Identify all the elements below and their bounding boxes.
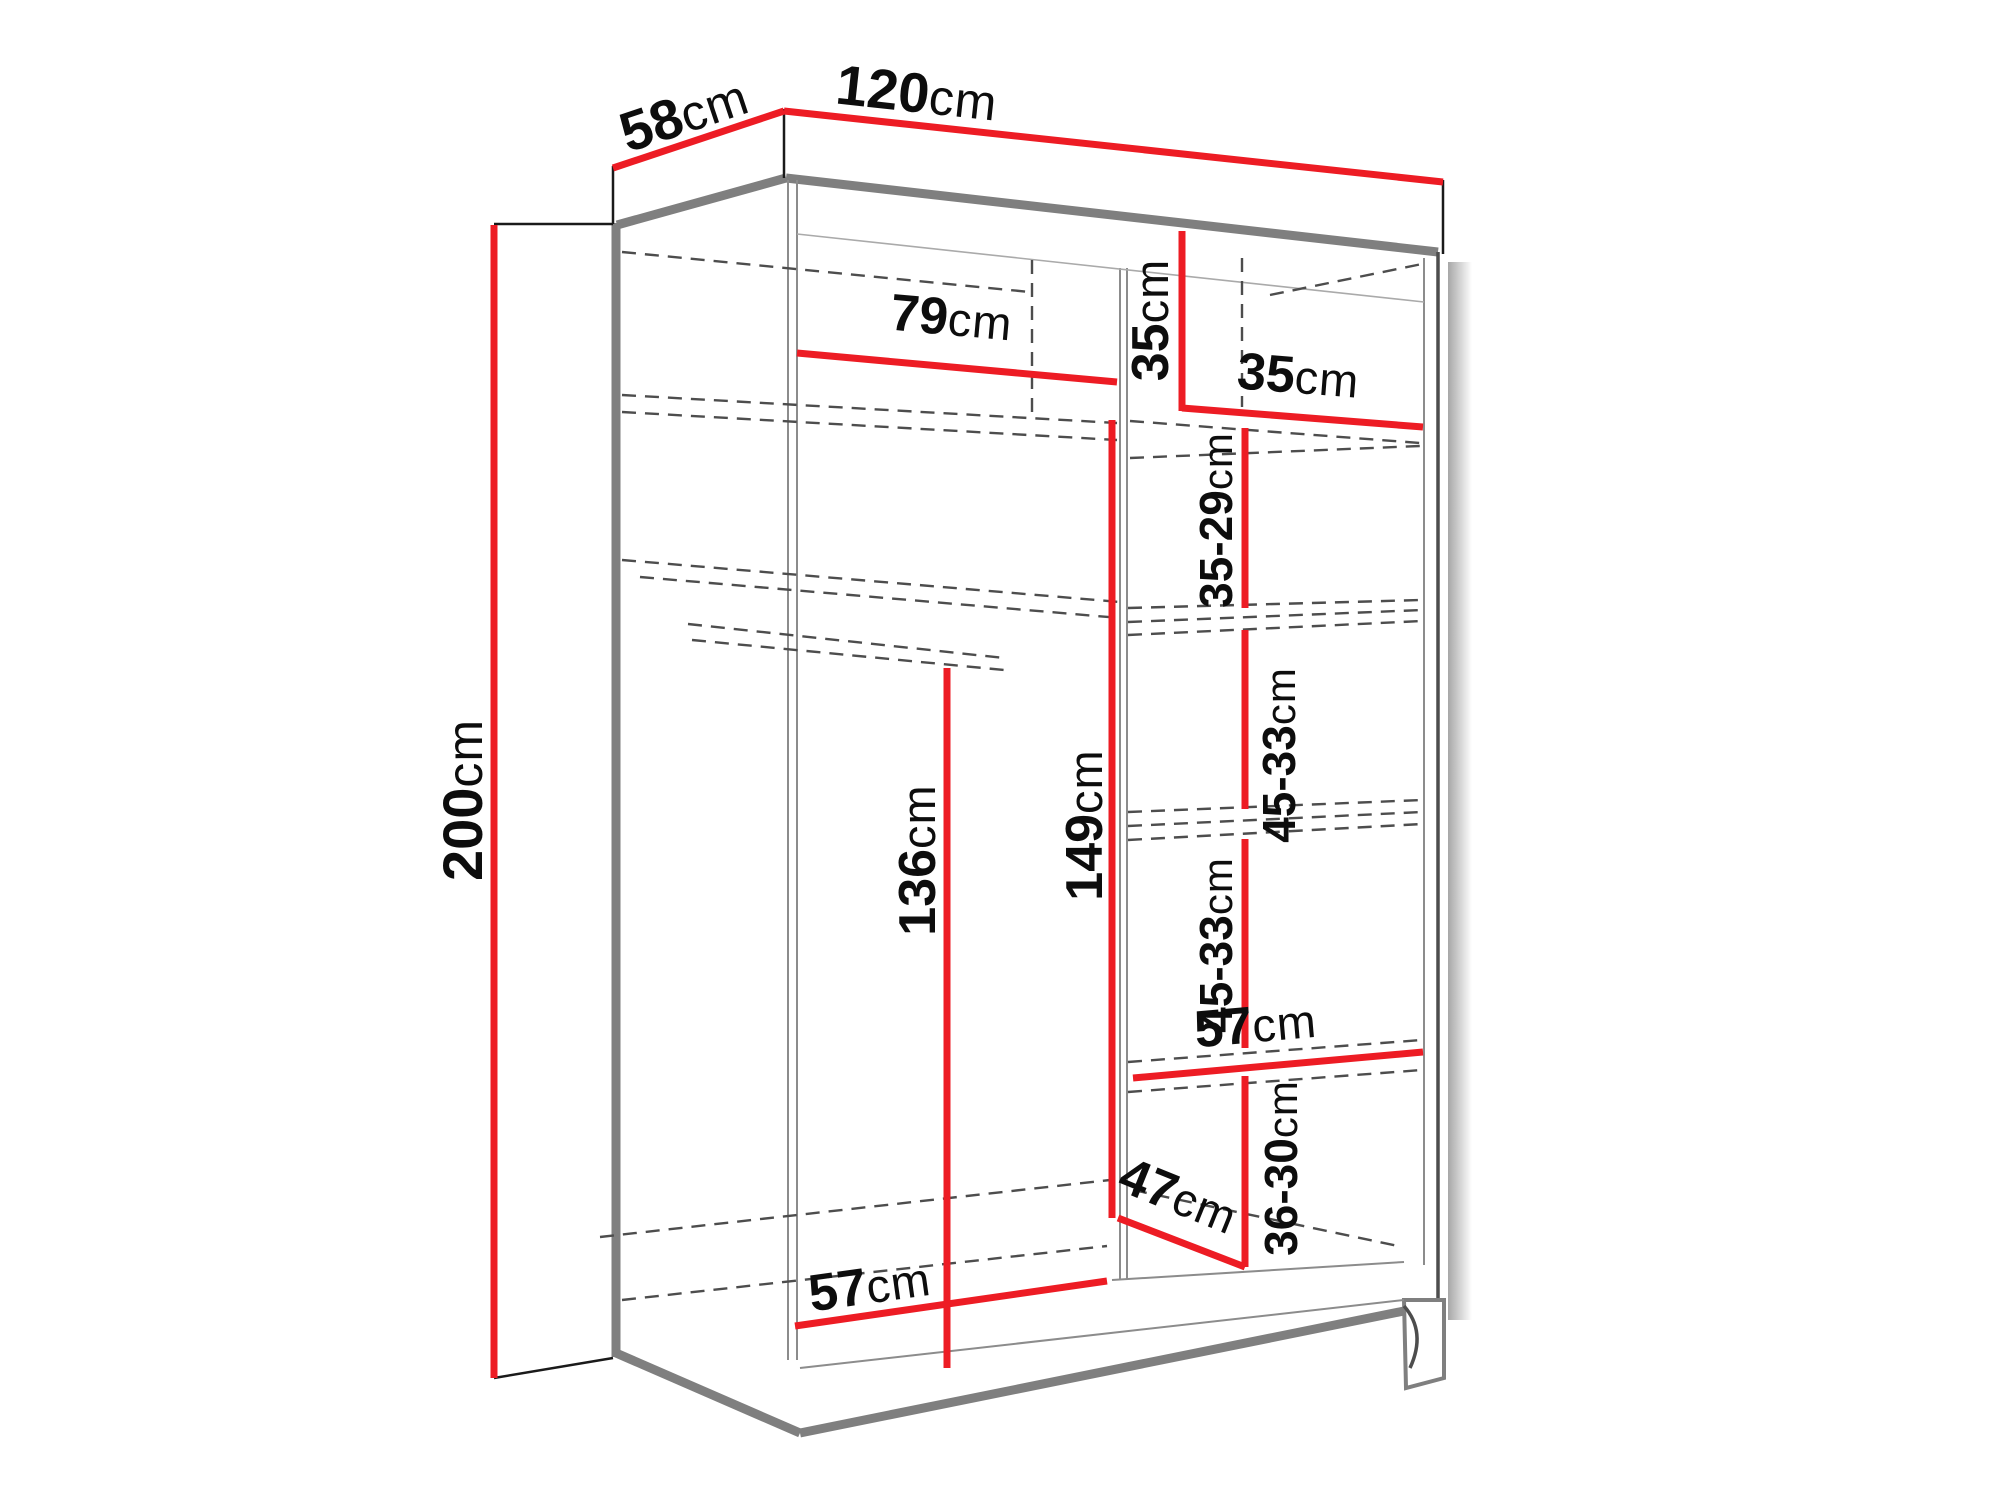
- dim-label-height-200cm: 200cm: [431, 719, 494, 881]
- wardrobe-dimension-diagram: 58cm 120cm 200cm 79cm 35cm 35cm 35-29cm …: [0, 0, 2000, 1500]
- dim-label-gap-45-33cm-a: 45-33cm: [1253, 667, 1305, 843]
- background: [0, 0, 2000, 1500]
- dim-label-gap-36-30cm: 36-30cm: [1255, 1080, 1307, 1256]
- diagram-canvas: 58cm 120cm 200cm 79cm 35cm 35cm 35-29cm …: [0, 0, 2000, 1500]
- right-shadow: [1448, 262, 1472, 1320]
- dim-label-cubby-height-35cm: 35cm: [1122, 259, 1180, 382]
- dim-label-gap-35-29cm: 35-29cm: [1190, 432, 1242, 608]
- dim-label-149cm: 149cm: [1056, 749, 1114, 900]
- dim-label-136cm: 136cm: [889, 784, 947, 935]
